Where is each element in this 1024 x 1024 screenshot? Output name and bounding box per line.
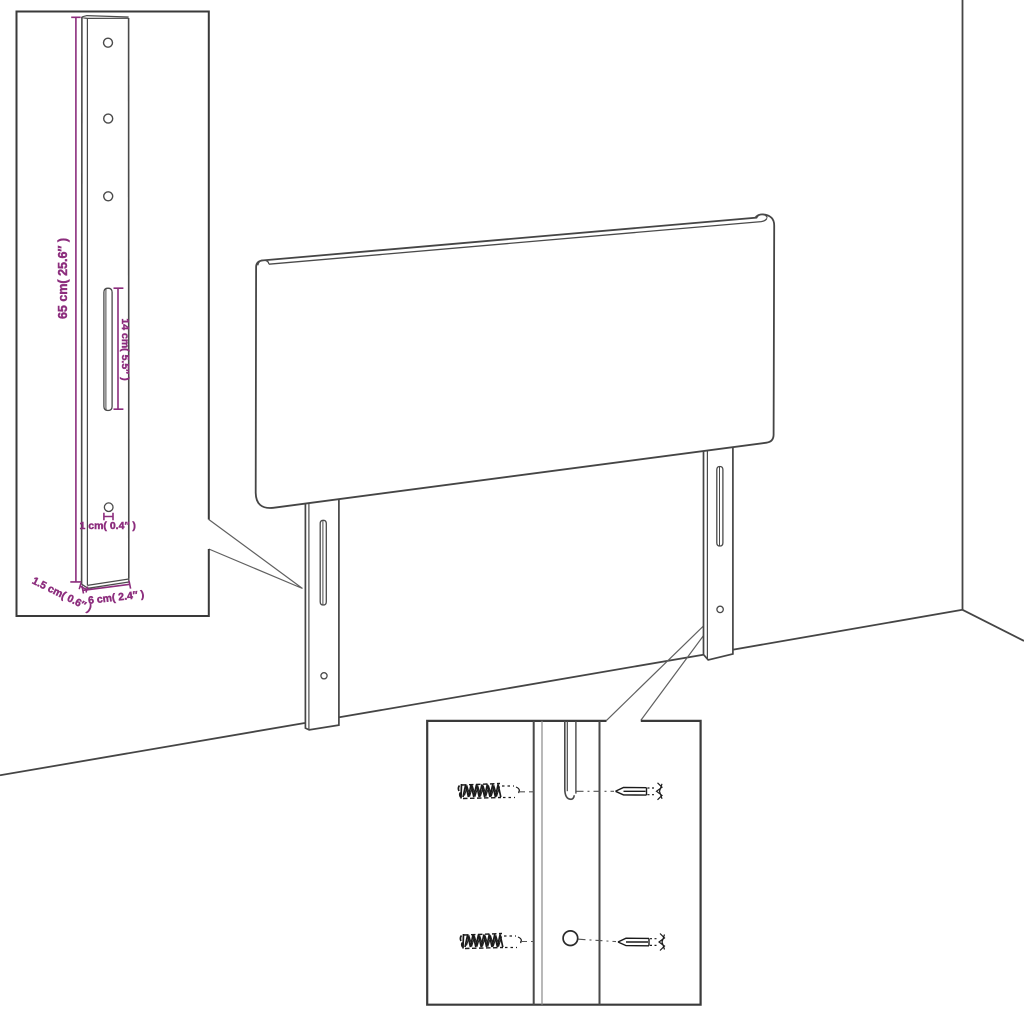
- svg-text:14 cm( 5.5″ ): 14 cm( 5.5″ ): [119, 318, 131, 380]
- svg-text:6 cm( 2.4″ ): 6 cm( 2.4″ ): [87, 589, 144, 607]
- svg-text:65 cm( 25.6″ ): 65 cm( 25.6″ ): [56, 238, 70, 319]
- svg-text:1.5 cm( 0.6″ ): 1.5 cm( 0.6″ ): [30, 575, 94, 615]
- svg-text:1 cm( 0.4″ ): 1 cm( 0.4″ ): [80, 520, 136, 532]
